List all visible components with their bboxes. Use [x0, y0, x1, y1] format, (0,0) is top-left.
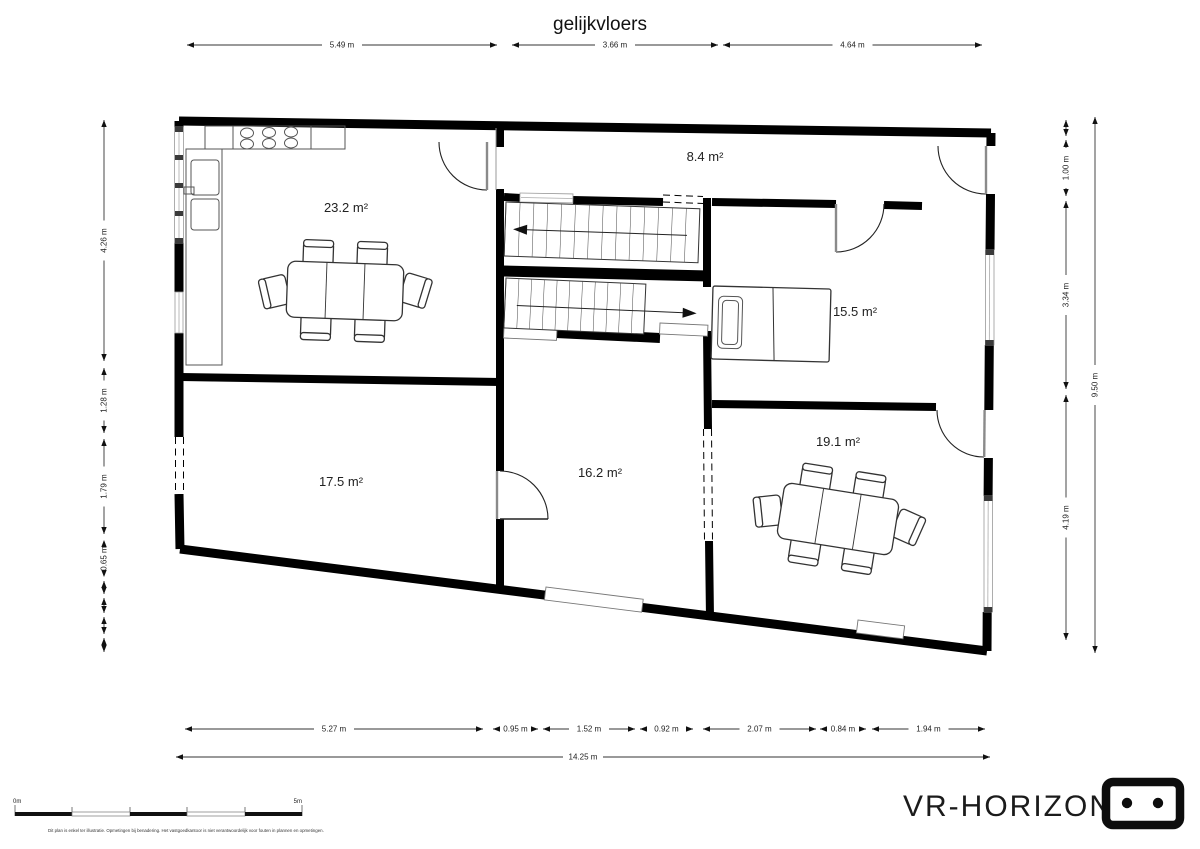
dim-left-2: 1.28 m	[99, 368, 109, 433]
svg-text:0.84 m: 0.84 m	[831, 725, 856, 734]
logo-text: VR-HORIZON	[903, 790, 1113, 823]
dim-right-3: 4.19 m	[1061, 395, 1071, 640]
dim-right-2: 3.34 m	[1061, 201, 1071, 389]
svg-text:2.07 m: 2.07 m	[747, 725, 772, 734]
scale-start-label: 0m	[13, 799, 21, 805]
floorplan-page: gelijkvloers	[0, 0, 1200, 849]
stair-flight-upper	[504, 202, 700, 263]
opening-left-dashed	[174, 437, 184, 494]
svg-text:5.49 m: 5.49 m	[330, 41, 355, 50]
window-right-bedroom	[985, 250, 994, 345]
scale-bar: 0m 5m	[13, 799, 302, 816]
svg-text:0.92 m: 0.92 m	[654, 725, 679, 734]
area-label-dining-room: 19.1 m²	[816, 434, 861, 449]
dim-left-4: 0.65 m	[99, 539, 109, 579]
dim-left-small-3	[101, 617, 106, 634]
dim-top-1: 5.49 m	[187, 40, 497, 50]
svg-text:5.27 m: 5.27 m	[322, 725, 347, 734]
dim-bottom-6: 0.84 m	[820, 724, 866, 734]
dim-bottom-2: 0.95 m	[493, 724, 538, 734]
dim-bottom-3: 1.52 m	[543, 724, 635, 734]
dim-top-2: 3.66 m	[512, 40, 718, 50]
area-label-front-room-left: 17.5 m²	[319, 474, 364, 489]
dim-bottom-1: 5.27 m	[185, 724, 483, 734]
dim-left-small-1	[101, 581, 106, 594]
dim-left-1: 4.26 m	[99, 120, 109, 361]
sill-stairs-right	[660, 323, 708, 336]
svg-text:4.19 m: 4.19 m	[1062, 505, 1071, 530]
window-left-small	[175, 292, 183, 333]
dim-bottom-7: 1.94 m	[872, 724, 985, 734]
area-label-living-kitchen: 23.2 m²	[324, 200, 369, 215]
svg-text:1.28 m: 1.28 m	[100, 388, 109, 413]
dim-top-3: 4.64 m	[723, 40, 982, 50]
disclaimer-text: Dit plan is enkel ter illustratie. Opmet…	[48, 828, 324, 833]
dim-right-small-1	[1063, 120, 1068, 136]
page-title: gelijkvloers	[553, 14, 647, 35]
dim-bottom-4: 0.92 m	[640, 724, 693, 734]
window-left-large	[175, 127, 184, 243]
svg-text:4.26 m: 4.26 m	[100, 228, 109, 253]
svg-text:14.25 m: 14.25 m	[569, 753, 598, 762]
floorplan-drawing: gelijkvloers	[0, 0, 1200, 849]
dim-left-small-4	[101, 638, 106, 652]
svg-text:1.00 m: 1.00 m	[1062, 155, 1071, 180]
area-label-bedroom: 15.5 m²	[833, 304, 878, 319]
dim-right-total: 9.50 m	[1090, 117, 1100, 653]
dim-left-3: 1.79 m	[99, 439, 109, 534]
svg-text:1.94 m: 1.94 m	[916, 725, 941, 734]
svg-text:0.65 m: 0.65 m	[100, 546, 109, 571]
bed	[711, 286, 831, 362]
dim-bottom-5: 2.07 m	[703, 724, 816, 734]
svg-text:0.95 m: 0.95 m	[503, 725, 528, 734]
dim-left-small-2	[101, 598, 106, 613]
area-label-middle-room: 16.2 m²	[578, 465, 623, 480]
svg-text:1.79 m: 1.79 m	[100, 474, 109, 499]
svg-text:9.50 m: 9.50 m	[1091, 372, 1100, 397]
svg-text:3.34 m: 3.34 m	[1062, 282, 1071, 307]
vr-goggles-icon	[1106, 782, 1180, 825]
svg-text:3.66 m: 3.66 m	[603, 41, 628, 50]
dim-bottom-total: 14.25 m	[176, 752, 990, 762]
area-label-hall: 8.4 m²	[687, 149, 725, 164]
window-stair-top	[520, 193, 573, 203]
svg-text:1.52 m: 1.52 m	[577, 725, 602, 734]
scale-end-label: 5m	[294, 799, 302, 805]
dim-right-1: 1.00 m	[1061, 140, 1071, 196]
svg-text:4.64 m: 4.64 m	[840, 41, 865, 50]
window-right-dining	[984, 496, 993, 612]
